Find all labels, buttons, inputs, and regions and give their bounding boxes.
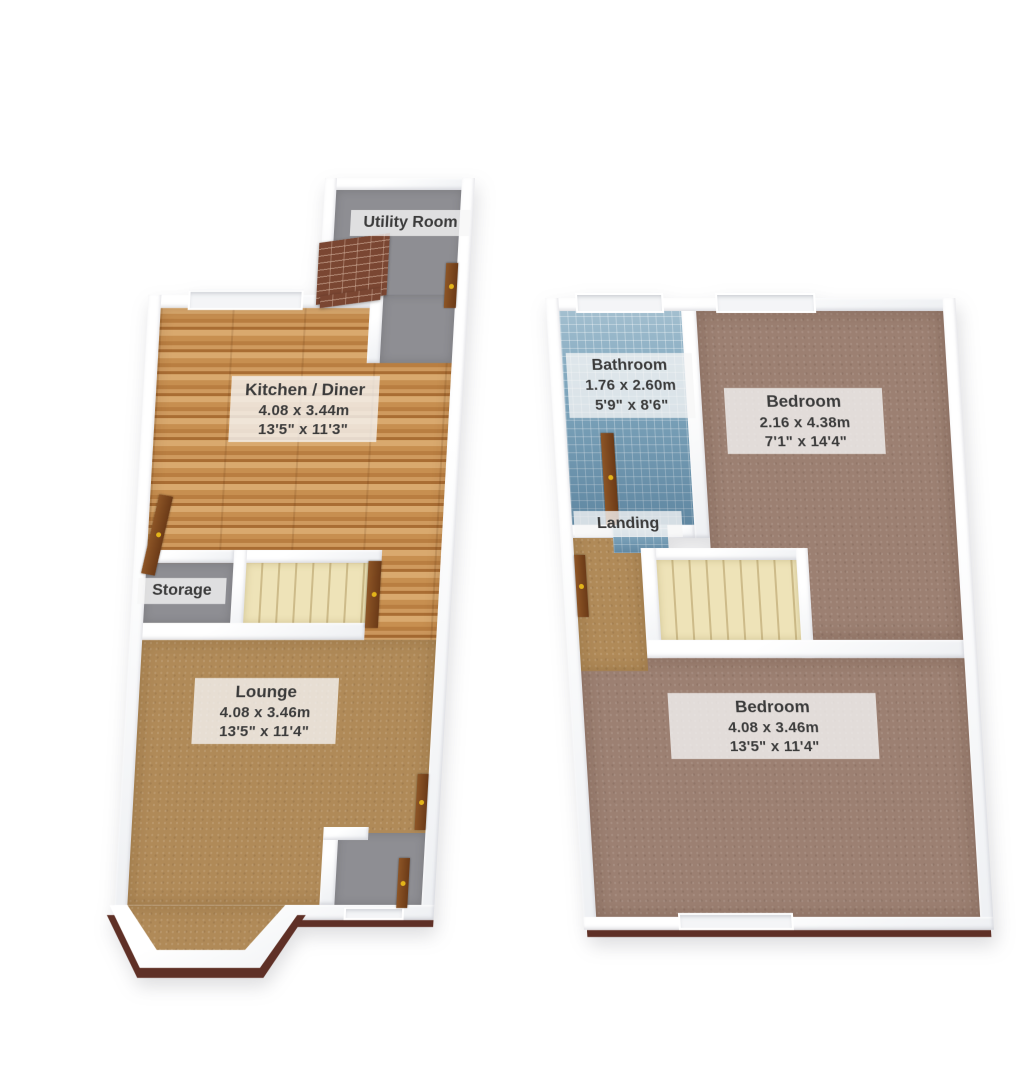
entrance-hall-floor — [334, 833, 425, 905]
door-handle — [608, 475, 613, 480]
door-handle — [579, 584, 584, 589]
bedroom-1-label: Bedroom 2.16 x 4.38m 7'1" x 14'4" — [724, 388, 886, 454]
room-name: Bedroom — [672, 696, 873, 718]
bottom-wall-edge — [587, 930, 991, 937]
door-handle — [156, 532, 162, 538]
kitchen-window — [188, 290, 304, 310]
door-handle — [400, 881, 405, 886]
utility-top-wall — [324, 178, 475, 190]
hall-window — [344, 907, 405, 920]
room-dims-metric: 4.08 x 3.44m — [233, 401, 374, 420]
door-handle — [449, 284, 454, 289]
kitchen-diner-label: Kitchen / Diner 4.08 x 3.44m 13'5" x 11'… — [228, 376, 380, 442]
room-dims-metric: 1.76 x 2.60m — [571, 376, 690, 395]
bedroom-divider-wall — [646, 640, 964, 658]
room-dims-imperial: 13'5" x 11'4" — [196, 722, 333, 741]
room-dims-metric: 4.08 x 3.46m — [197, 703, 334, 722]
bedroom-2-label: Bedroom 4.08 x 3.46m 13'5" x 11'4" — [667, 693, 879, 759]
room-dims-imperial: 7'1" x 14'4" — [730, 432, 881, 451]
stairwell-top-wall — [656, 548, 809, 560]
room-name: Storage — [141, 581, 222, 601]
room-name: Lounge — [198, 681, 335, 703]
bedroom-1-window — [715, 293, 816, 313]
hall-top-wall — [323, 827, 369, 840]
storage-label: Storage — [137, 578, 226, 604]
bathroom-window — [575, 293, 664, 313]
bedroom-2-window — [678, 913, 794, 930]
first-floor-plan: Bathroom 1.76 x 2.60m 5'9" x 8'6" Bedroo… — [540, 293, 1000, 943]
lounge-divider-wall — [129, 623, 365, 640]
bathroom-label: Bathroom 1.76 x 2.60m 5'9" x 8'6" — [566, 353, 696, 418]
utility-room-label: Utility Room — [350, 210, 471, 236]
room-dims-imperial: 13'5" x 11'3" — [232, 420, 373, 439]
room-name: Bathroom — [570, 356, 689, 376]
bathroom-floor — [559, 311, 694, 525]
door-handle — [419, 800, 424, 805]
utility-room-door — [444, 263, 459, 308]
lounge-label: Lounge 4.08 x 3.46m 13'5" x 11'4" — [191, 678, 339, 744]
room-name: Landing — [578, 514, 679, 534]
landing-label: Landing — [573, 511, 683, 537]
staircase-first — [656, 560, 801, 640]
room-dims-metric: 4.08 x 3.46m — [673, 718, 874, 737]
bay-window — [95, 905, 314, 985]
stairs-top-wall — [233, 550, 382, 563]
door-handle — [372, 592, 377, 597]
ground-floor-plan: Utility Room Kitchen / Diner 4.08 x 3.44… — [40, 178, 485, 988]
staircase-ground — [243, 563, 368, 623]
room-name: Bedroom — [728, 391, 879, 413]
room-dims-imperial: 5'9" x 8'6" — [572, 396, 691, 415]
room-dims-imperial: 13'5" x 11'4" — [674, 737, 875, 756]
room-dims-metric: 2.16 x 4.38m — [729, 413, 880, 432]
room-name: Kitchen / Diner — [235, 379, 376, 401]
room-name: Utility Room — [354, 213, 467, 233]
